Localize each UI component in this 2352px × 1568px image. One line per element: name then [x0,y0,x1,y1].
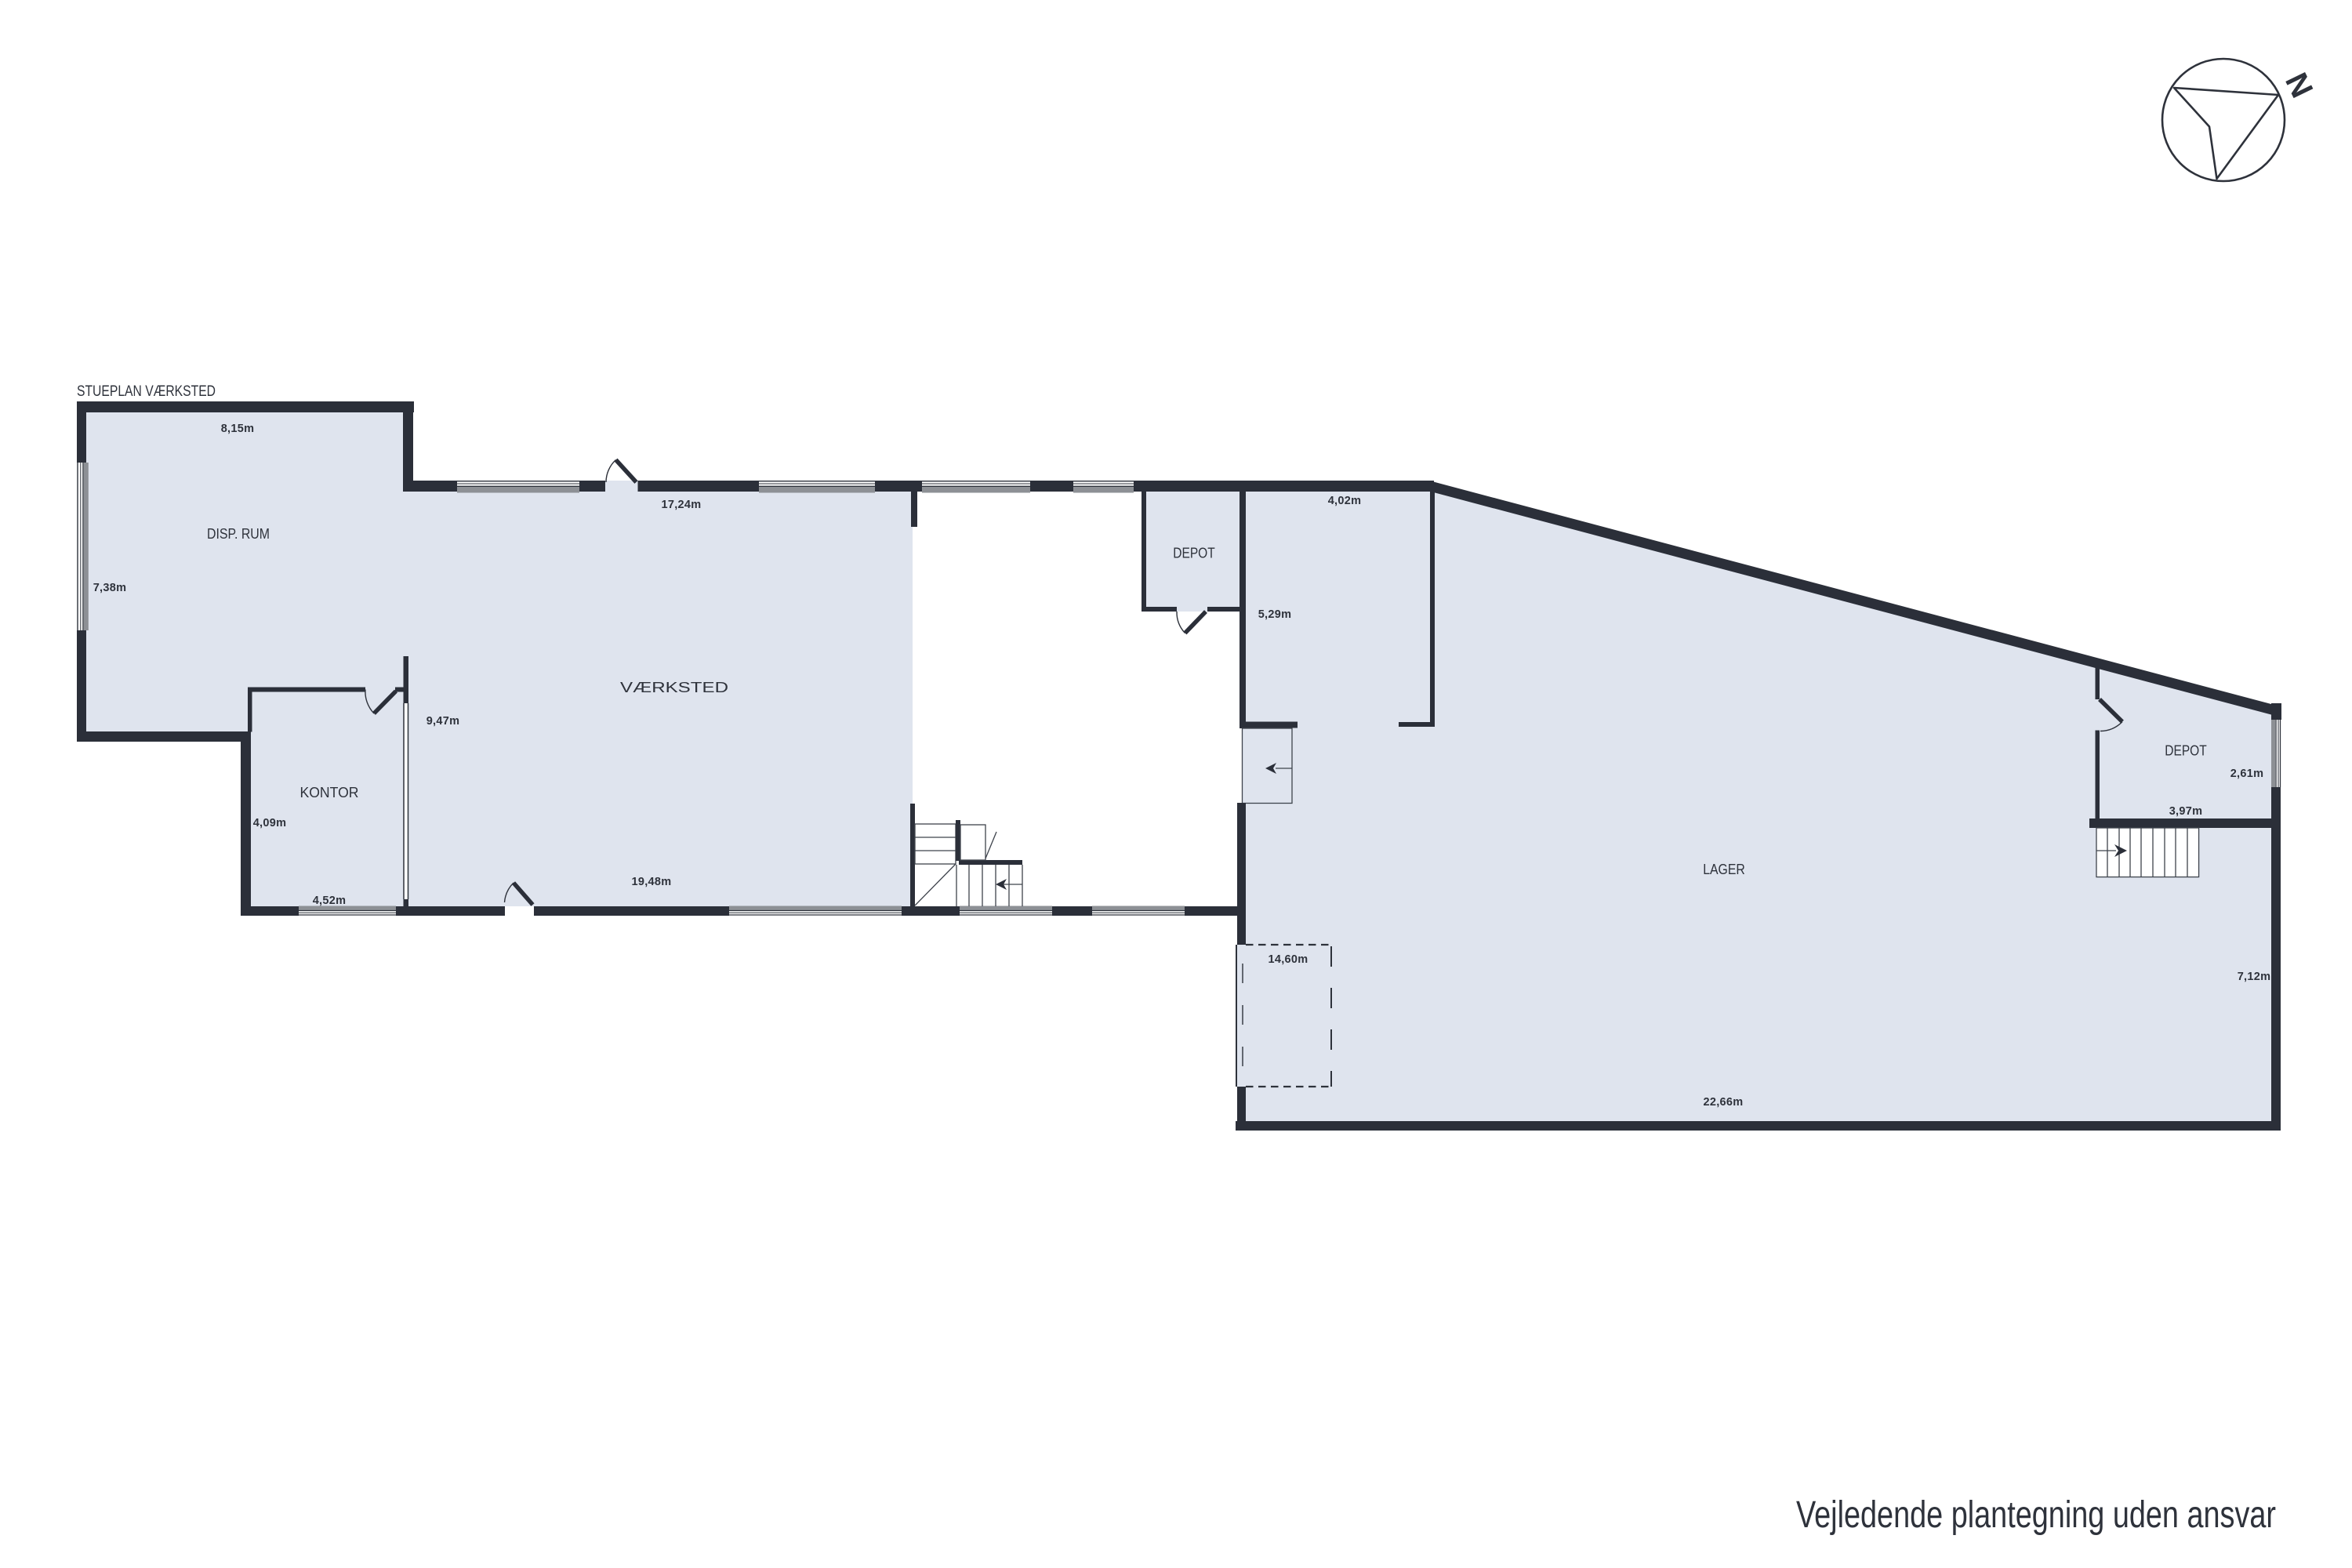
svg-text:DEPOT: DEPOT [2165,742,2207,759]
svg-text:17,24m: 17,24m [662,499,702,511]
svg-text:4,02m: 4,02m [1328,495,1362,507]
svg-text:22,66m: 22,66m [1704,1096,1744,1109]
svg-text:8,15m: 8,15m [221,423,255,435]
svg-text:STUEPLAN VÆRKSTED: STUEPLAN VÆRKSTED [77,383,216,400]
svg-text:7,38m: 7,38m [93,582,127,594]
svg-text:DISP. RUM: DISP. RUM [207,525,270,542]
svg-text:N: N [2278,67,2319,103]
svg-text:KONTOR: KONTOR [300,784,359,800]
svg-text:5,29m: 5,29m [1258,608,1292,621]
svg-text:LAGER: LAGER [1703,861,1745,877]
svg-text:VÆRKSTED: VÆRKSTED [620,679,728,695]
svg-text:DEPOT: DEPOT [1173,545,1215,561]
svg-text:7,12m: 7,12m [2238,971,2271,983]
svg-text:3,97m: 3,97m [2169,805,2203,818]
svg-text:Vejledende plantegning uden an: Vejledende plantegning uden ansvar [1796,1494,2276,1536]
svg-text:4,09m: 4,09m [253,817,287,829]
svg-text:19,48m: 19,48m [632,876,672,888]
svg-text:2,61m: 2,61m [2230,768,2264,780]
svg-text:14,60m: 14,60m [1269,953,1308,966]
svg-text:4,52m: 4,52m [313,895,347,907]
svg-text:9,47m: 9,47m [426,715,460,728]
